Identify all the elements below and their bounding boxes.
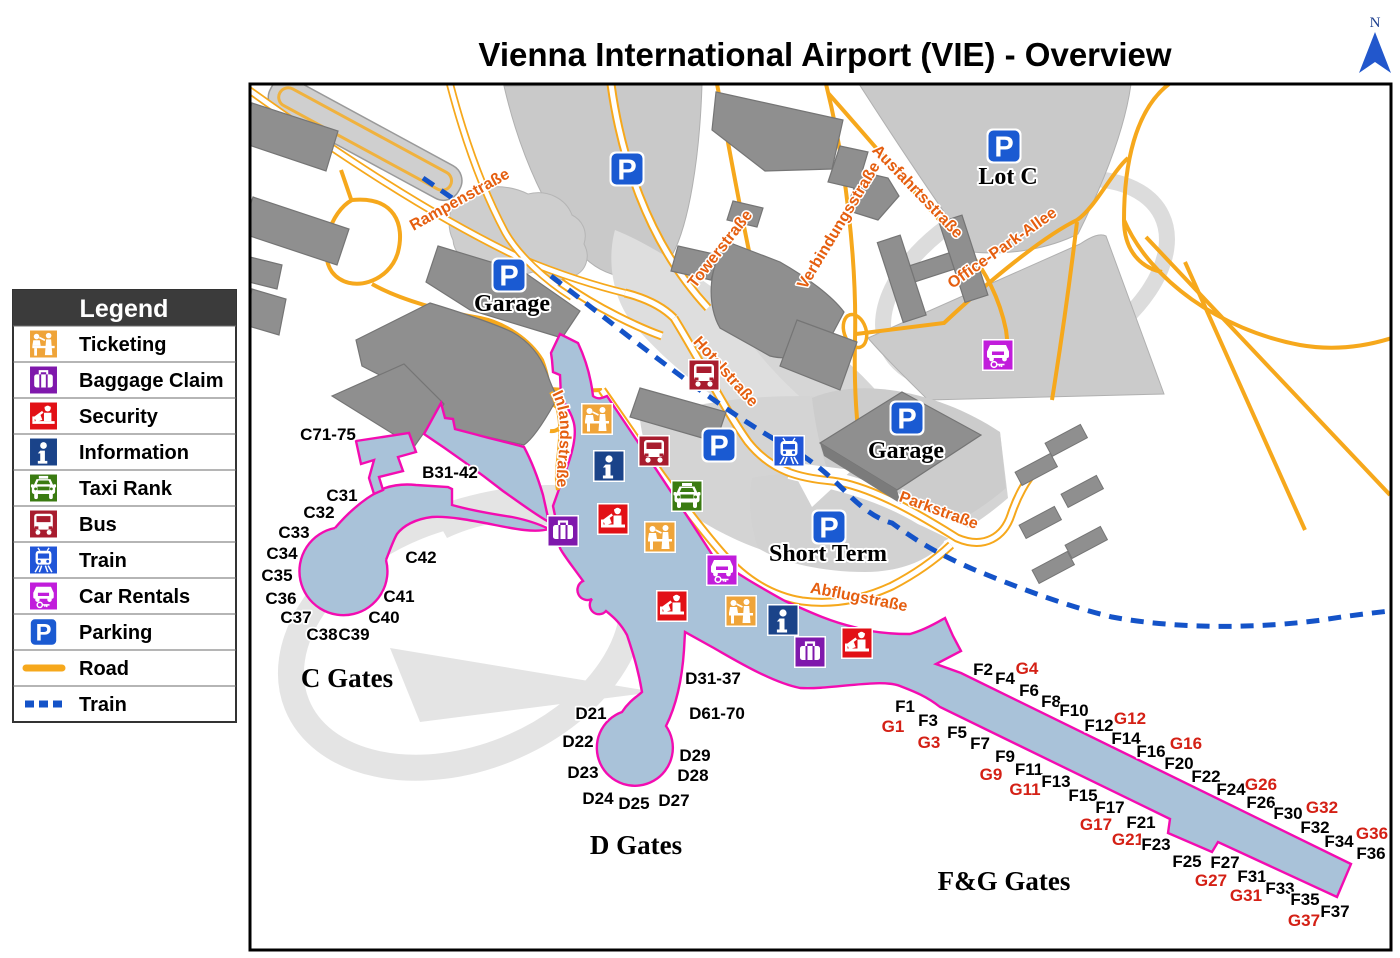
svg-text:G11: G11: [1009, 780, 1040, 799]
svg-text:G9: G9: [980, 765, 1003, 784]
svg-text:D24: D24: [582, 789, 614, 808]
svg-text:F23: F23: [1141, 835, 1170, 854]
svg-text:Garage: Garage: [474, 291, 550, 317]
svg-text:F13: F13: [1041, 772, 1070, 791]
svg-text:D28: D28: [677, 766, 708, 785]
svg-text:C41: C41: [383, 587, 414, 606]
svg-text:C34: C34: [266, 544, 298, 563]
svg-text:G32: G32: [1306, 798, 1338, 817]
svg-text:F24: F24: [1216, 780, 1246, 799]
svg-text:C38: C38: [306, 625, 337, 644]
svg-text:G17: G17: [1080, 815, 1112, 834]
svg-text:F20: F20: [1164, 754, 1193, 773]
svg-text:C40: C40: [368, 608, 399, 627]
svg-text:D23: D23: [567, 763, 598, 782]
svg-text:Train: Train: [79, 550, 127, 572]
svg-text:N: N: [1370, 15, 1381, 31]
svg-text:F34: F34: [1324, 832, 1354, 851]
svg-text:F&G Gates: F&G Gates: [938, 866, 1071, 896]
svg-text:D29: D29: [679, 746, 710, 765]
svg-text:G3: G3: [918, 733, 941, 752]
svg-text:G12: G12: [1114, 709, 1146, 728]
svg-text:F11: F11: [1015, 760, 1043, 779]
svg-text:F7: F7: [970, 734, 990, 753]
svg-text:Car Rentals: Car Rentals: [79, 586, 190, 608]
svg-text:G1: G1: [882, 717, 905, 736]
svg-text:C36: C36: [265, 589, 296, 608]
svg-text:Legend: Legend: [80, 295, 169, 323]
svg-text:C42: C42: [405, 548, 436, 567]
svg-text:F30: F30: [1273, 804, 1302, 823]
svg-text:Baggage Claim: Baggage Claim: [79, 370, 223, 392]
svg-text:F8: F8: [1041, 692, 1061, 711]
svg-text:D21: D21: [575, 704, 606, 723]
svg-text:B31-42: B31-42: [422, 463, 478, 482]
svg-text:D31-37: D31-37: [685, 669, 741, 688]
svg-text:D Gates: D Gates: [590, 830, 682, 860]
svg-text:Bus: Bus: [79, 514, 117, 536]
svg-text:F12: F12: [1084, 716, 1113, 735]
svg-text:Information: Information: [79, 442, 189, 464]
svg-text:Taxi Rank: Taxi Rank: [79, 478, 173, 500]
svg-text:Vienna International Airport (: Vienna International Airport (VIE) - Ove…: [478, 36, 1171, 73]
svg-text:G4: G4: [1016, 659, 1039, 678]
svg-text:C39: C39: [338, 625, 369, 644]
svg-text:F9: F9: [995, 747, 1015, 766]
svg-text:D27: D27: [658, 791, 689, 810]
svg-text:Short Term: Short Term: [769, 541, 887, 567]
svg-text:Parking: Parking: [79, 622, 152, 644]
svg-text:F4: F4: [995, 669, 1015, 688]
svg-text:G21: G21: [1112, 830, 1144, 849]
svg-text:F26: F26: [1246, 793, 1275, 812]
svg-text:G37: G37: [1288, 911, 1320, 930]
svg-text:Lot C: Lot C: [978, 164, 1037, 190]
svg-text:C33: C33: [278, 523, 309, 542]
svg-text:G36: G36: [1356, 824, 1388, 843]
svg-text:G16: G16: [1170, 734, 1202, 753]
svg-text:G26: G26: [1245, 775, 1277, 794]
svg-text:F1: F1: [895, 697, 915, 716]
svg-text:G31: G31: [1230, 886, 1262, 905]
svg-text:F25: F25: [1172, 852, 1201, 871]
svg-text:F15: F15: [1068, 786, 1097, 805]
svg-text:F27: F27: [1210, 853, 1239, 872]
svg-text:F36: F36: [1356, 844, 1385, 863]
svg-text:Train: Train: [79, 694, 127, 716]
svg-text:F6: F6: [1019, 681, 1039, 700]
svg-text:D22: D22: [562, 732, 593, 751]
svg-text:Security: Security: [79, 406, 159, 428]
svg-text:F37: F37: [1320, 902, 1349, 921]
svg-text:Road: Road: [79, 658, 129, 680]
svg-text:C32: C32: [303, 503, 334, 522]
svg-text:F2: F2: [973, 660, 993, 679]
svg-text:F16: F16: [1136, 742, 1165, 761]
svg-text:F5: F5: [947, 723, 967, 742]
svg-text:C71-75: C71-75: [300, 425, 356, 444]
svg-text:Ticketing: Ticketing: [79, 334, 166, 356]
svg-text:F31: F31: [1237, 867, 1266, 886]
svg-text:F3: F3: [918, 711, 938, 730]
svg-text:Garage: Garage: [868, 438, 944, 464]
svg-text:C Gates: C Gates: [301, 663, 393, 693]
svg-text:C35: C35: [261, 566, 292, 585]
svg-text:G27: G27: [1195, 871, 1227, 890]
svg-text:D61-70: D61-70: [689, 704, 745, 723]
svg-text:F35: F35: [1290, 890, 1319, 909]
svg-text:D25: D25: [618, 794, 649, 813]
